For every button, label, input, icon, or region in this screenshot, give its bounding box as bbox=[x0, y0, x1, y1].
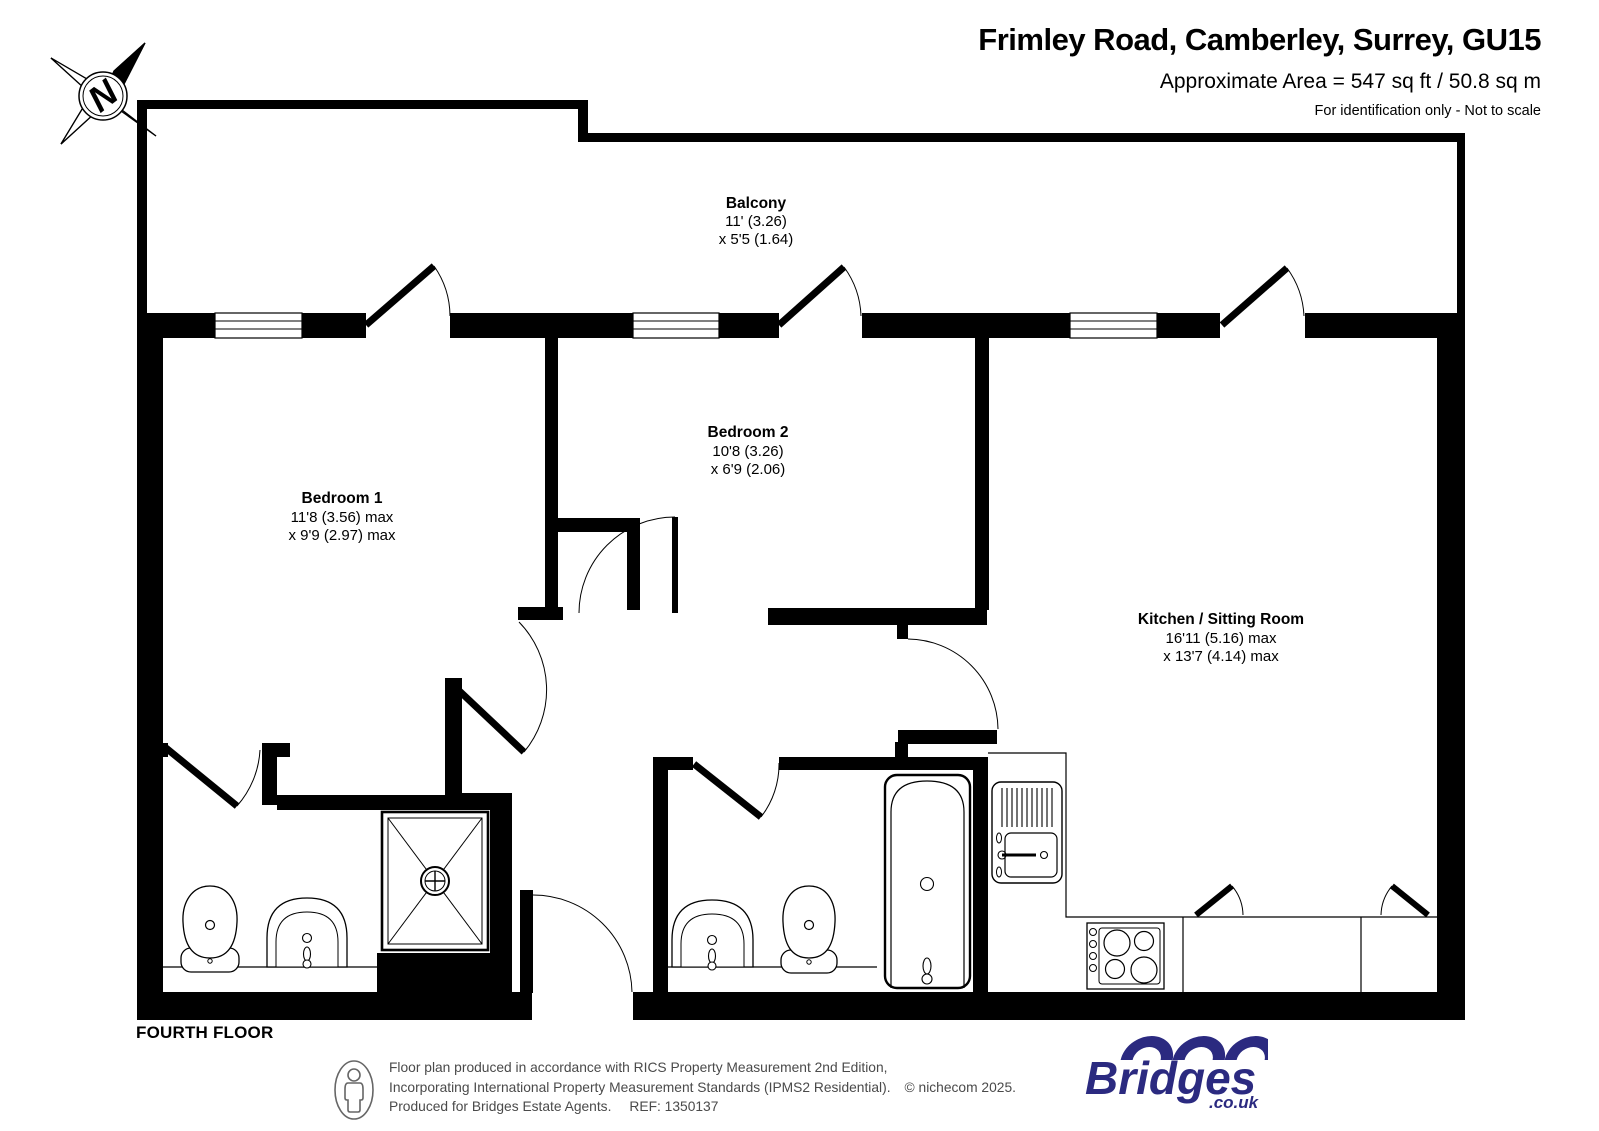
svg-text:Balcony: Balcony bbox=[726, 195, 787, 212]
floor-label: FOURTH FLOOR bbox=[136, 1023, 273, 1043]
svg-text:Bedroom 1: Bedroom 1 bbox=[302, 490, 383, 507]
footer-text: Floor plan produced in accordance with R… bbox=[389, 1058, 1016, 1117]
bathtub bbox=[885, 775, 970, 988]
door-balcony-bedroom1 bbox=[366, 266, 450, 325]
door-appliance-2 bbox=[1381, 886, 1428, 915]
footer-line3: Produced for Bridges Estate Agents.REF: … bbox=[389, 1097, 1016, 1117]
svg-text:x 6'9 (2.06): x 6'9 (2.06) bbox=[711, 461, 786, 478]
kitchen-fixtures bbox=[988, 753, 1437, 992]
room-labels: Balcony 11' (3.26) x 5'5 (1.64) Bedroom … bbox=[288, 195, 1304, 665]
shower-ensuite bbox=[382, 812, 488, 950]
door-kitchen-entry bbox=[908, 639, 998, 729]
bathroom-fixtures bbox=[668, 775, 970, 988]
sink-ensuite bbox=[267, 898, 347, 968]
door-ensuite bbox=[166, 748, 260, 806]
svg-text:x 13'7 (4.14) max: x 13'7 (4.14) max bbox=[1163, 648, 1279, 665]
room-label-kitchen-sitting: Kitchen / Sitting Room 16'11 (5.16) max … bbox=[1138, 611, 1304, 665]
footer-line2: Incorporating International Property Mea… bbox=[389, 1078, 1016, 1098]
copyright: © nichecom 2025. bbox=[905, 1080, 1016, 1095]
svg-text:Kitchen / Sitting Room: Kitchen / Sitting Room bbox=[1138, 611, 1304, 628]
toilet-ensuite bbox=[181, 886, 239, 972]
svg-text:x 9'9 (2.97) max: x 9'9 (2.97) max bbox=[288, 527, 396, 544]
toilet-bathroom bbox=[781, 886, 837, 973]
door-entrance bbox=[533, 895, 632, 992]
svg-text:Bedroom 2: Bedroom 2 bbox=[708, 424, 789, 441]
room-label-bedroom1: Bedroom 1 11'8 (3.56) max x 9'9 (2.97) m… bbox=[288, 490, 396, 544]
svg-text:16'11 (5.16) max: 16'11 (5.16) max bbox=[1166, 630, 1277, 647]
footer: Floor plan produced in accordance with R… bbox=[333, 1058, 1016, 1122]
logo-suffix: .co.uk bbox=[1209, 1093, 1260, 1110]
doors bbox=[166, 266, 1428, 992]
reference-number: REF: 1350137 bbox=[629, 1099, 718, 1114]
door-bathroom bbox=[694, 763, 779, 817]
svg-text:11' (3.26): 11' (3.26) bbox=[725, 213, 787, 230]
floorplan-page: Frimley Road, Camberley, Surrey, GU15 Ap… bbox=[0, 0, 1599, 1131]
window-bedroom2 bbox=[633, 313, 719, 338]
svg-text:11'8 (3.56) max: 11'8 (3.56) max bbox=[291, 509, 394, 526]
window-kitchen bbox=[1070, 313, 1157, 338]
room-label-balcony: Balcony 11' (3.26) x 5'5 (1.64) bbox=[719, 195, 794, 248]
room-label-bedroom2: Bedroom 2 10'8 (3.26) x 6'9 (2.06) bbox=[708, 424, 789, 478]
door-appliance-1 bbox=[1196, 886, 1243, 915]
footer-line1: Floor plan produced in accordance with R… bbox=[389, 1058, 1016, 1078]
door-bedroom1 bbox=[452, 622, 547, 752]
floorplan-drawing: Balcony 11' (3.26) x 5'5 (1.64) Bedroom … bbox=[0, 0, 1599, 1131]
door-balcony-kitchen bbox=[1222, 268, 1304, 325]
person-icon bbox=[333, 1058, 375, 1122]
hob bbox=[1087, 923, 1164, 989]
svg-text:x 5'5 (1.64): x 5'5 (1.64) bbox=[719, 231, 794, 248]
svg-text:10'8 (3.26): 10'8 (3.26) bbox=[712, 443, 783, 460]
ensuite-fixtures bbox=[163, 812, 488, 972]
sink-bathroom bbox=[672, 900, 753, 970]
bridges-logo: Bridges .co.uk bbox=[1083, 1030, 1268, 1115]
window-bedroom1 bbox=[215, 313, 302, 338]
drainer-lines bbox=[1002, 788, 1052, 827]
walls bbox=[137, 100, 1465, 1020]
door-balcony-bedroom2 bbox=[779, 267, 861, 325]
kitchen-sink-unit bbox=[992, 782, 1062, 883]
